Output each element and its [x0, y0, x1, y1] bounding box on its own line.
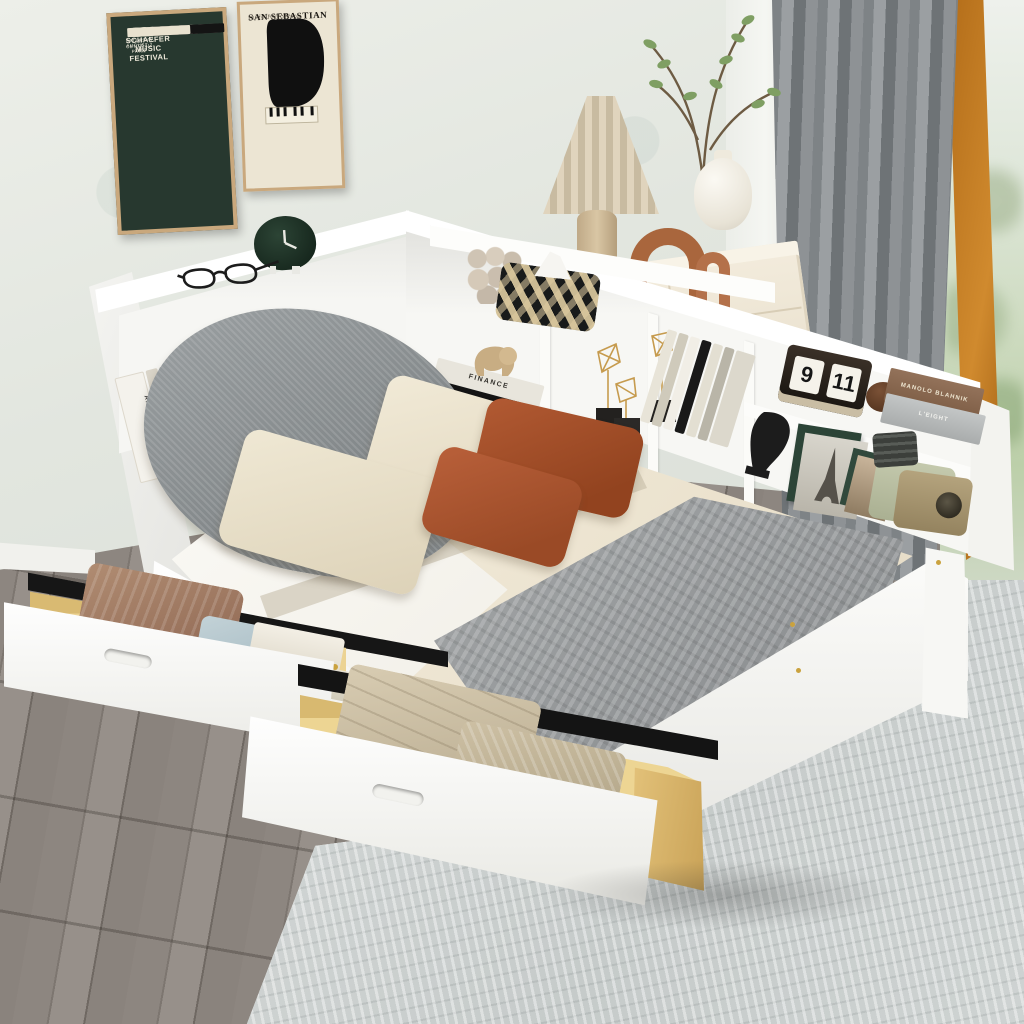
bedroom-scene: SCHAEFER MUSIC FESTIVAL IN CENTRAL PARK …	[0, 0, 1024, 1024]
radio-tag	[872, 431, 918, 468]
gold-screw	[796, 668, 801, 673]
poster-san-sebastian: SAN SEBASTIAN JAZZ FESTIVAL 21-26 JULIO …	[237, 0, 346, 192]
vintage-camera	[892, 469, 973, 537]
flip-calendar-day: 11	[826, 363, 862, 402]
poster-left-date: SATURDAY, AUGUST 2, 1967	[126, 37, 156, 53]
bed-right-post	[922, 540, 968, 730]
gold-screw	[936, 560, 941, 565]
gold-screw	[790, 622, 795, 627]
poster-schaefer: SCHAEFER MUSIC FESTIVAL IN CENTRAL PARK …	[106, 7, 237, 235]
grand-piano-art	[248, 14, 336, 135]
camera-lens	[934, 491, 963, 520]
vase	[694, 158, 752, 230]
drawer-shadow	[540, 860, 900, 930]
elephant-figurine	[468, 336, 522, 382]
book-title: L'EIGHT	[918, 411, 949, 424]
flip-calendar-month: 9	[789, 355, 825, 394]
